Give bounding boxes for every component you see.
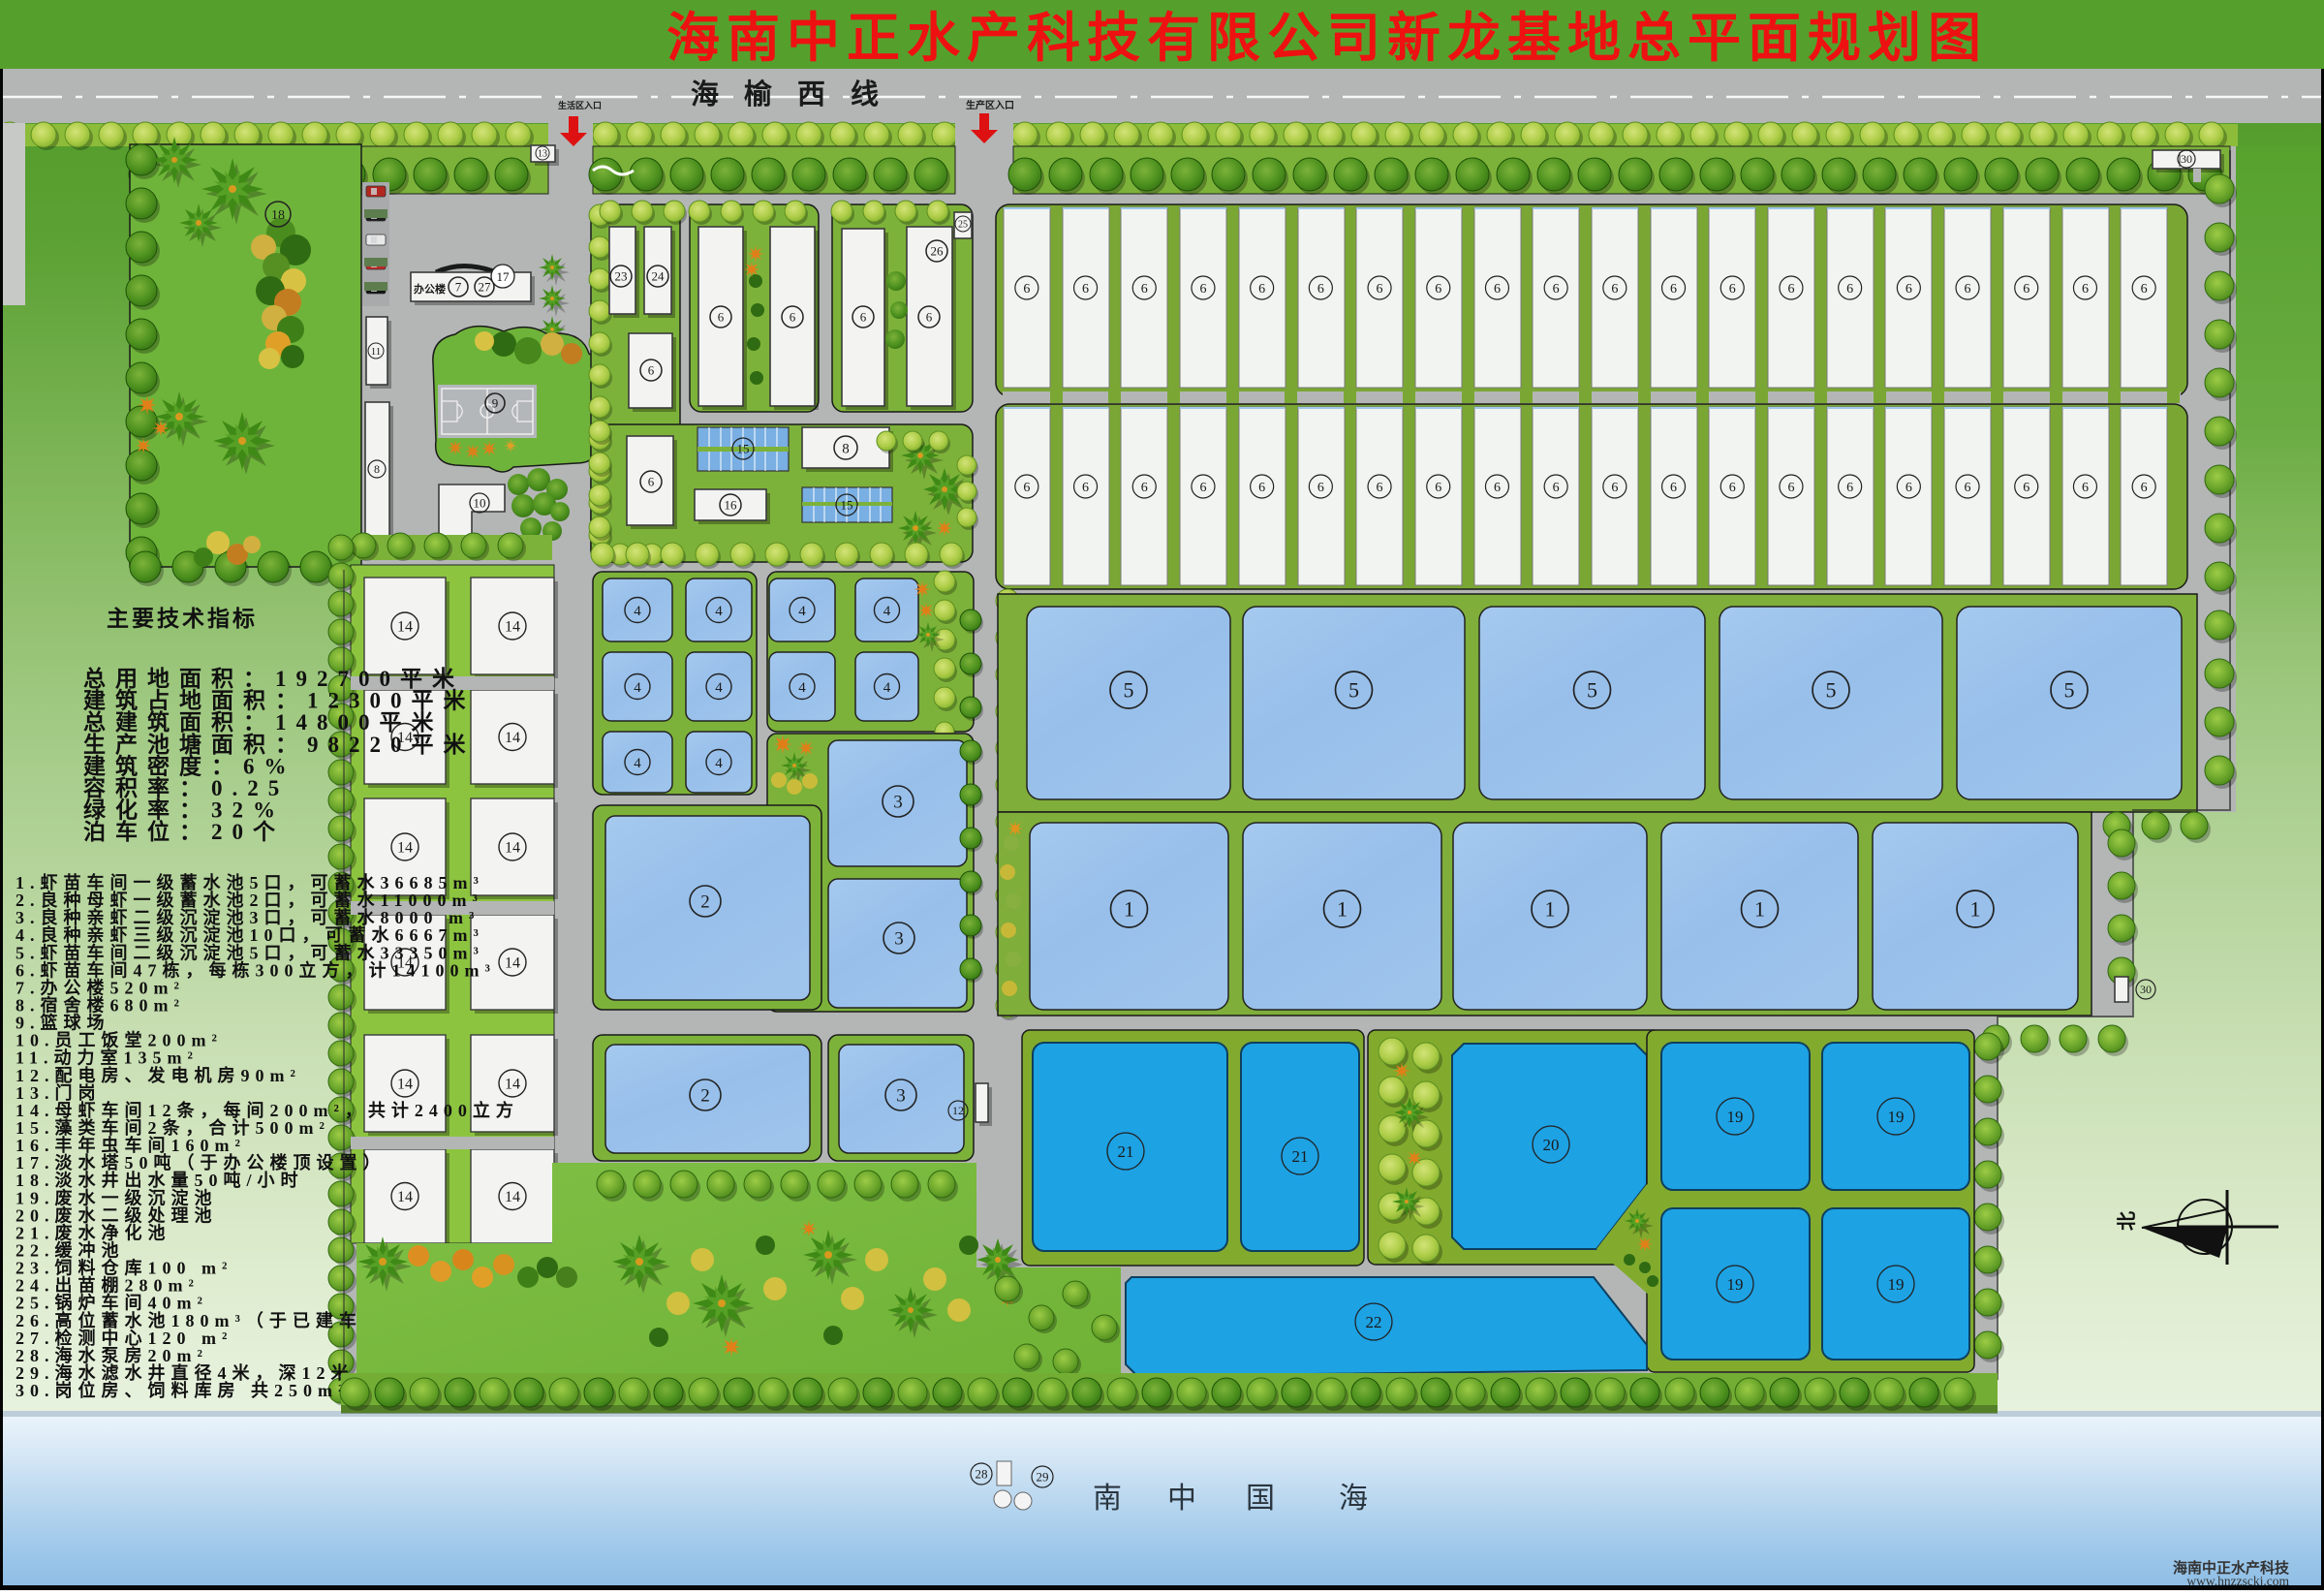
svg-text:6: 6 xyxy=(1141,481,1148,495)
svg-text:总用地面积：192700平米: 总用地面积：192700平米 xyxy=(83,666,464,691)
svg-text:19: 19 xyxy=(1727,1108,1744,1126)
svg-text:6: 6 xyxy=(1729,481,1736,495)
svg-text:11: 11 xyxy=(371,346,382,358)
svg-text:8.宿舍楼680m²: 8.宿舍楼680m² xyxy=(15,994,185,1015)
svg-text:6: 6 xyxy=(1494,481,1501,495)
svg-text:4.良种亲虾三级沉淀池10口，可蓄水6667m³: 4.良种亲虾三级沉淀池10口，可蓄水6667m³ xyxy=(15,924,484,945)
svg-text:4: 4 xyxy=(798,604,806,619)
svg-text:6: 6 xyxy=(1082,282,1089,297)
svg-text:1: 1 xyxy=(1754,897,1765,922)
svg-text:14: 14 xyxy=(397,619,413,636)
svg-text:29.海水滤水井直径4米，深12米: 29.海水滤水井直径4米，深12米 xyxy=(15,1362,355,1383)
svg-text:6: 6 xyxy=(2141,282,2148,297)
svg-text:总建筑面积：14800平米: 总建筑面积：14800平米 xyxy=(83,709,444,735)
svg-text:6: 6 xyxy=(1553,282,1560,297)
svg-text:容积率：0.25: 容积率：0.25 xyxy=(83,775,289,800)
svg-text:海榆西线: 海榆西线 xyxy=(691,78,904,110)
svg-text:6: 6 xyxy=(1846,282,1853,297)
svg-text:6: 6 xyxy=(1082,481,1089,495)
svg-text:6: 6 xyxy=(1023,282,1030,297)
svg-text:30.岗位房、饲料库房 共250m²: 30.岗位房、饲料库房 共250m² xyxy=(15,1380,349,1400)
svg-text:国: 国 xyxy=(1246,1483,1275,1515)
svg-text:8: 8 xyxy=(374,462,380,476)
svg-text:18: 18 xyxy=(271,208,285,223)
svg-text:25.锅炉车间40m²: 25.锅炉车间40m² xyxy=(15,1293,208,1313)
svg-text:2.良种母虾一级蓄水池2口，可蓄水11000m³: 2.良种母虾一级蓄水池2口，可蓄水11000m³ xyxy=(15,890,483,910)
svg-text:6: 6 xyxy=(1729,282,1736,297)
svg-text:10.员工饭堂200m²: 10.员工饭堂200m² xyxy=(15,1030,223,1050)
svg-text:23: 23 xyxy=(615,269,628,284)
svg-text:6: 6 xyxy=(1965,282,1971,297)
svg-text:30: 30 xyxy=(2181,152,2192,166)
svg-text:14: 14 xyxy=(505,1189,520,1205)
svg-text:15: 15 xyxy=(841,498,853,513)
svg-text:5.虾苗车间二级沉淀池5口，可蓄水33350m³: 5.虾苗车间二级沉淀池5口，可蓄水33350m³ xyxy=(15,942,484,962)
svg-text:14: 14 xyxy=(397,1189,413,1205)
svg-text:南: 南 xyxy=(1093,1483,1122,1515)
svg-text:22: 22 xyxy=(1366,1313,1382,1331)
svg-text:6: 6 xyxy=(2082,481,2089,495)
svg-text:19: 19 xyxy=(1888,1108,1905,1126)
svg-text:21: 21 xyxy=(1292,1147,1309,1166)
svg-text:海: 海 xyxy=(1339,1483,1368,1515)
svg-text:4: 4 xyxy=(715,680,723,696)
svg-text:6: 6 xyxy=(1846,481,1853,495)
svg-text:14: 14 xyxy=(505,619,520,636)
svg-text:17.淡水塔50吨（于办公楼顶设置）: 17.淡水塔50吨（于办公楼顶设置） xyxy=(15,1152,387,1173)
svg-text:4: 4 xyxy=(634,604,641,619)
svg-text:建筑占地面积：12300平米: 建筑占地面积：12300平米 xyxy=(83,688,476,713)
svg-text:6: 6 xyxy=(1906,481,1912,495)
svg-text:4: 4 xyxy=(634,680,641,696)
svg-text:北: 北 xyxy=(2116,1211,2138,1231)
svg-text:6: 6 xyxy=(2141,481,2148,495)
svg-text:6: 6 xyxy=(718,310,725,325)
svg-text:22.缓冲池: 22.缓冲池 xyxy=(15,1239,125,1260)
svg-text:6: 6 xyxy=(1199,481,1206,495)
svg-text:1: 1 xyxy=(1970,897,1981,922)
svg-text:26: 26 xyxy=(931,244,945,259)
svg-text:2: 2 xyxy=(700,892,710,913)
svg-text:14: 14 xyxy=(505,955,520,972)
svg-text:6: 6 xyxy=(1611,282,1618,297)
svg-text:6: 6 xyxy=(1787,481,1794,495)
svg-text:6: 6 xyxy=(1141,282,1148,297)
svg-text:28.海水泵房20m²: 28.海水泵房20m² xyxy=(15,1345,208,1365)
svg-text:9.篮球场: 9.篮球场 xyxy=(15,1013,110,1033)
svg-text:6: 6 xyxy=(2023,282,2030,297)
svg-text:海南中正水产科技有限公司新龙基地总平面规划图: 海南中正水产科技有限公司新龙基地总平面规划图 xyxy=(666,9,1988,68)
svg-text:6: 6 xyxy=(1258,282,1265,297)
svg-text:5: 5 xyxy=(2064,678,2075,703)
svg-text:3: 3 xyxy=(894,929,904,950)
svg-text:17: 17 xyxy=(497,269,511,284)
svg-text:19.废水一级沉淀池: 19.废水一级沉淀池 xyxy=(15,1187,218,1207)
svg-text:19: 19 xyxy=(1888,1275,1905,1294)
svg-text:主要技术指标: 主要技术指标 xyxy=(107,607,258,631)
svg-text:6: 6 xyxy=(1670,282,1677,297)
svg-text:6: 6 xyxy=(1906,282,1912,297)
svg-text:4: 4 xyxy=(883,604,891,619)
svg-text:6: 6 xyxy=(1435,282,1441,297)
svg-text:6.虾苗车间47栋，每栋300立方，计14100m³: 6.虾苗车间47栋，每栋300立方，计14100m³ xyxy=(15,959,496,980)
svg-text:6: 6 xyxy=(790,310,796,325)
svg-text:13: 13 xyxy=(538,149,547,160)
svg-text:27.检测中心120 m²: 27.检测中心120 m² xyxy=(15,1328,232,1348)
svg-text:6: 6 xyxy=(1435,481,1441,495)
svg-text:13.门岗: 13.门岗 xyxy=(15,1082,102,1103)
svg-text:办公楼: 办公楼 xyxy=(414,282,446,296)
svg-text:6: 6 xyxy=(926,310,933,325)
svg-text:6: 6 xyxy=(648,475,655,489)
svg-text:6: 6 xyxy=(2023,481,2030,495)
svg-text:6: 6 xyxy=(1317,282,1324,297)
svg-text:27: 27 xyxy=(479,280,492,295)
svg-text:2: 2 xyxy=(700,1086,710,1107)
svg-text:6: 6 xyxy=(1377,481,1383,495)
svg-text:12.配电房、发电机房90m²: 12.配电房、发电机房90m² xyxy=(15,1065,301,1085)
svg-text:14: 14 xyxy=(397,1077,413,1093)
svg-text:3.良种亲虾二级沉淀池3口，可蓄水8000 m³: 3.良种亲虾二级沉淀池3口，可蓄水8000 m³ xyxy=(15,907,480,927)
svg-text:6: 6 xyxy=(1199,282,1206,297)
svg-text:3: 3 xyxy=(896,1086,906,1107)
svg-text:8: 8 xyxy=(842,441,850,456)
svg-text:16.丰年虫车间160m²: 16.丰年虫车间160m² xyxy=(15,1135,246,1155)
svg-text:6: 6 xyxy=(1023,481,1030,495)
svg-text:1.虾苗车间一级蓄水池5口，可蓄水36685m³: 1.虾苗车间一级蓄水池5口，可蓄水36685m³ xyxy=(15,872,484,892)
svg-text:20: 20 xyxy=(1543,1136,1560,1154)
svg-text:24.出苗棚280m²: 24.出苗棚280m² xyxy=(15,1275,200,1296)
svg-text:7: 7 xyxy=(455,280,462,295)
svg-text:6: 6 xyxy=(1670,481,1677,495)
svg-text:6: 6 xyxy=(1377,282,1383,297)
svg-text:3: 3 xyxy=(893,793,903,813)
svg-text:1: 1 xyxy=(1337,897,1348,922)
svg-text:4: 4 xyxy=(883,680,891,696)
svg-text:12: 12 xyxy=(952,1104,964,1117)
svg-text:18.淡水井出水量50吨/小时: 18.淡水井出水量50吨/小时 xyxy=(15,1170,304,1190)
svg-text:21.废水净化池: 21.废水净化池 xyxy=(15,1222,171,1242)
svg-text:生活区入口: 生活区入口 xyxy=(558,100,602,110)
svg-text:6: 6 xyxy=(1611,481,1618,495)
svg-text:6: 6 xyxy=(1787,282,1794,297)
svg-text:6: 6 xyxy=(648,363,655,378)
svg-text:10: 10 xyxy=(474,496,486,511)
svg-text:1: 1 xyxy=(1124,897,1134,922)
svg-text:19: 19 xyxy=(1727,1275,1744,1294)
svg-text:泊车位：20个: 泊车位：20个 xyxy=(83,819,285,844)
svg-text:4: 4 xyxy=(634,756,641,771)
svg-text:中: 中 xyxy=(1167,1483,1196,1515)
svg-text:5: 5 xyxy=(1826,678,1837,703)
svg-text:5: 5 xyxy=(1348,678,1359,703)
svg-text:6: 6 xyxy=(1317,481,1324,495)
svg-text:14: 14 xyxy=(505,730,520,746)
svg-text:25: 25 xyxy=(958,220,968,231)
svg-text:24: 24 xyxy=(652,269,666,284)
svg-text:6: 6 xyxy=(1553,481,1560,495)
svg-text:30: 30 xyxy=(2140,983,2152,996)
svg-text:4: 4 xyxy=(798,680,806,696)
svg-text:7.办公楼520m²: 7.办公楼520m² xyxy=(15,977,185,997)
svg-text:14: 14 xyxy=(397,840,413,857)
svg-text:绿化率：32%: 绿化率：32% xyxy=(83,797,285,823)
svg-text:29: 29 xyxy=(1037,1470,1049,1485)
svg-text:建筑密度：6%: 建筑密度：6% xyxy=(83,753,296,778)
svg-text:6: 6 xyxy=(1258,481,1265,495)
svg-text:16: 16 xyxy=(725,498,738,513)
svg-text:9: 9 xyxy=(492,396,499,411)
svg-text:6: 6 xyxy=(1965,481,1971,495)
svg-text:14: 14 xyxy=(505,1077,520,1093)
svg-text:6: 6 xyxy=(860,310,867,325)
svg-text:20.废水二级处理池: 20.废水二级处理池 xyxy=(15,1204,218,1225)
svg-text:4: 4 xyxy=(715,604,723,619)
svg-text:生产区入口: 生产区入口 xyxy=(966,99,1014,111)
svg-text:生产池塘面积：98220平米: 生产池塘面积：98220平米 xyxy=(83,732,476,757)
svg-text:14: 14 xyxy=(505,840,520,857)
svg-text:14.母虾车间12条，每间200m²，共计2400立方: 14.母虾车间12条，每间200m²，共计2400立方 xyxy=(15,1100,519,1120)
svg-text:21: 21 xyxy=(1118,1142,1134,1161)
svg-text:5: 5 xyxy=(1587,678,1597,703)
svg-text:28: 28 xyxy=(976,1467,988,1482)
svg-text:6: 6 xyxy=(1494,282,1501,297)
svg-text:6: 6 xyxy=(2082,282,2089,297)
svg-text:5: 5 xyxy=(1124,678,1134,703)
svg-text:11.动力室135m²: 11.动力室135m² xyxy=(15,1048,199,1068)
svg-text:1: 1 xyxy=(1545,897,1556,922)
svg-text:4: 4 xyxy=(715,756,723,771)
svg-text:15.藻类车间2条，合计500m²: 15.藻类车间2条，合计500m² xyxy=(15,1117,330,1138)
svg-text:15: 15 xyxy=(737,442,750,456)
svg-text:23.饲料仓库100 m²: 23.饲料仓库100 m² xyxy=(15,1258,232,1278)
